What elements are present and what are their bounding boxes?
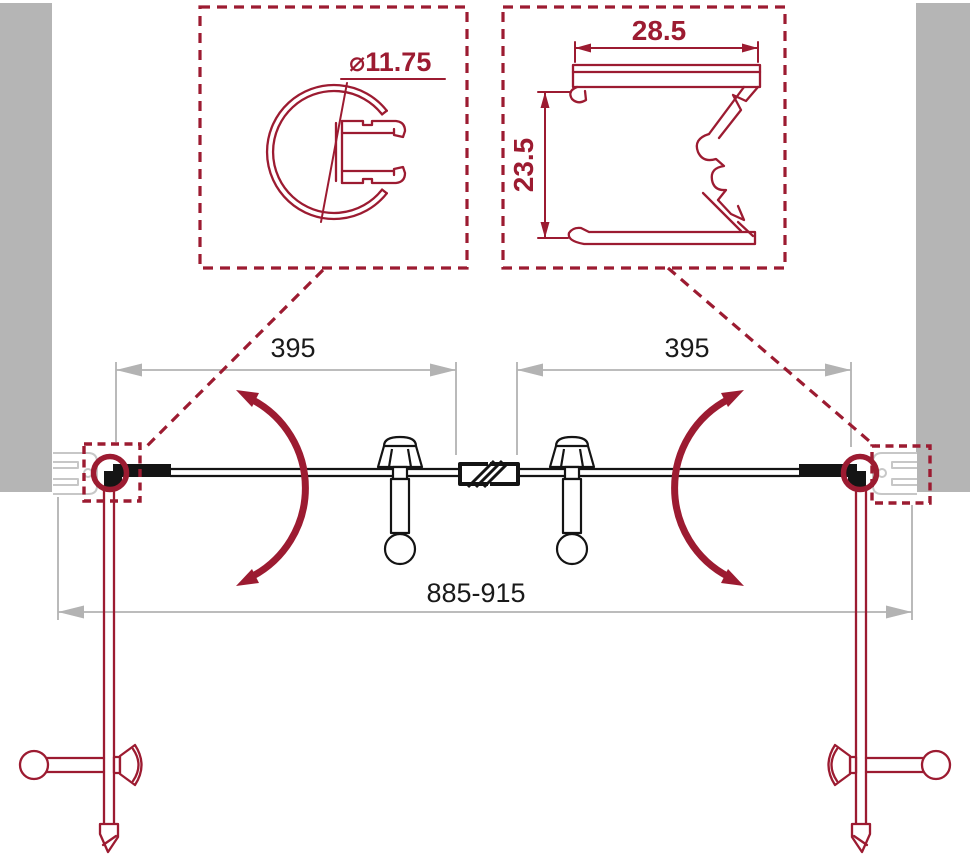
right-swing-arc (675, 399, 729, 577)
open-door-right (829, 490, 951, 852)
knob-profile-drawing: ⌀11.75 (267, 47, 445, 222)
left-open-glass (104, 490, 114, 824)
wall-profile-drawing: 28.5 23.5 (508, 15, 760, 244)
right-open-glass (856, 490, 866, 824)
magnetic-closure (460, 461, 518, 487)
left-knob (378, 437, 422, 564)
right-wall (916, 3, 970, 492)
right-wall-profile (873, 453, 917, 494)
right-door-glass (518, 469, 800, 476)
left-door-glass (170, 469, 460, 476)
wall-profile-height-label: 23.5 (508, 138, 539, 193)
walls (0, 3, 970, 492)
left-wall-profile (53, 453, 97, 494)
swing-arrows (236, 390, 744, 586)
wall-profile-width-label: 28.5 (632, 15, 687, 46)
detail-callout-knob-profile: ⌀11.75 (145, 7, 467, 448)
knob-diameter-label: ⌀11.75 (349, 47, 431, 77)
shower-door-diagram: 885-915 395 395 ⌀11 (0, 0, 970, 856)
open-door-left (20, 490, 142, 852)
right-open-knob (829, 745, 951, 785)
right-door-width-label: 395 (664, 333, 709, 363)
right-glass-end-cap (852, 824, 870, 852)
overall-width-label: 885-915 (426, 578, 525, 608)
technical-drawing-canvas: 885-915 395 395 ⌀11 (0, 0, 970, 856)
overall-width-dimension: 885-915 (58, 497, 912, 620)
left-glass-end-cap (100, 824, 118, 852)
left-swing-arc (251, 399, 305, 577)
right-knob (550, 437, 594, 564)
detail-callout-wall-profile: 28.5 23.5 (503, 7, 875, 446)
left-door-width-label: 395 (270, 333, 315, 363)
left-open-knob (20, 745, 142, 785)
left-wall (0, 3, 52, 492)
door-assembly (53, 437, 930, 564)
